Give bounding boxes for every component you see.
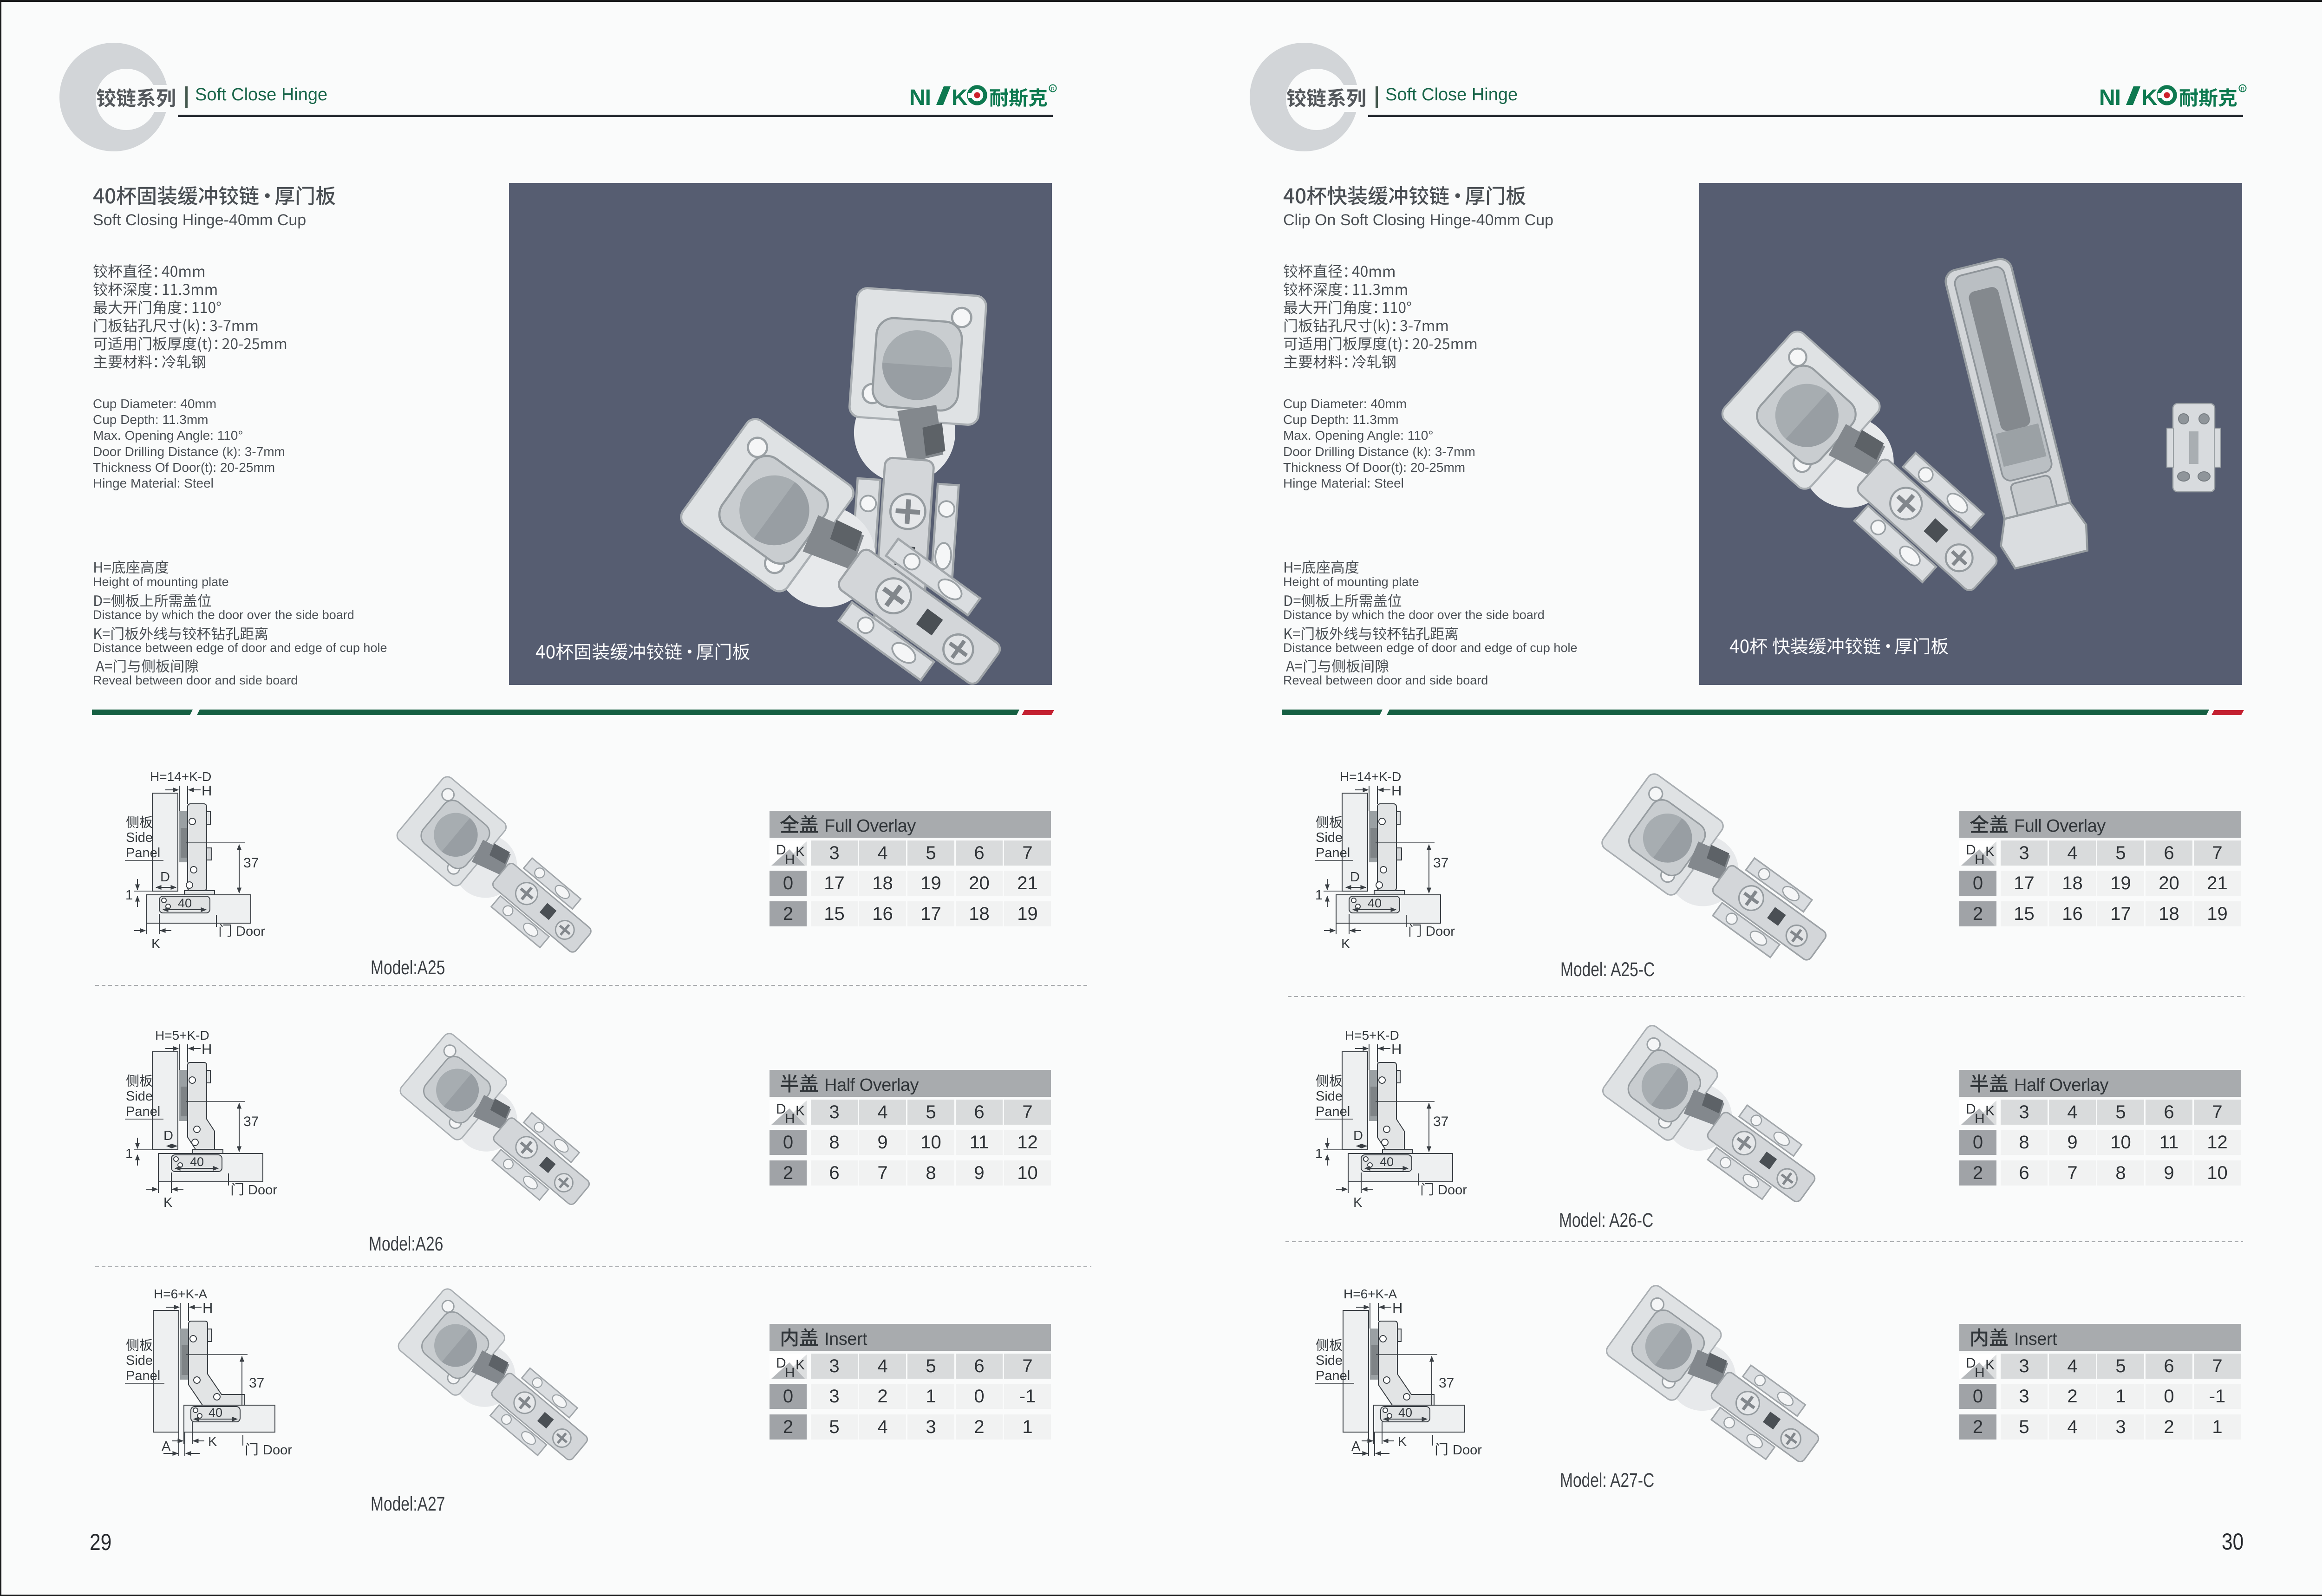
svg-text:H: H — [1975, 1365, 1985, 1379]
svg-text:H: H — [785, 1365, 795, 1379]
svg-text:H: H — [1975, 1111, 1985, 1125]
svg-text:H: H — [785, 1111, 795, 1125]
svg-text:K: K — [1985, 844, 1995, 860]
svg-text:K: K — [1985, 1357, 1995, 1373]
svg-text:H: H — [785, 852, 795, 866]
svg-text:K: K — [1985, 1103, 1995, 1119]
svg-text:H: H — [1975, 852, 1985, 866]
svg-text:K: K — [796, 1357, 805, 1373]
svg-text:K: K — [796, 844, 805, 860]
svg-text:K: K — [796, 1103, 805, 1119]
